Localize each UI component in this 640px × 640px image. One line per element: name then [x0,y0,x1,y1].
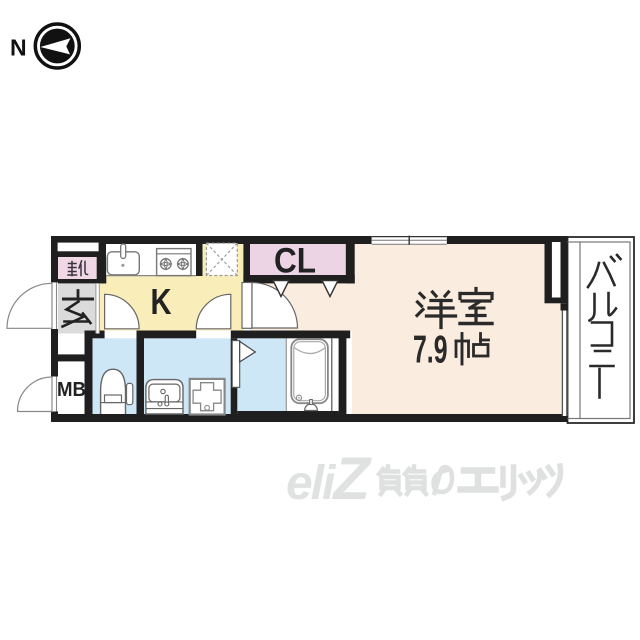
svg-text:N: N [10,35,27,61]
svg-text:K: K [151,281,172,322]
svg-text:CL: CL [274,242,316,281]
svg-text:MB: MB [57,379,86,401]
svg-text:7.9: 7.9 [413,329,448,372]
